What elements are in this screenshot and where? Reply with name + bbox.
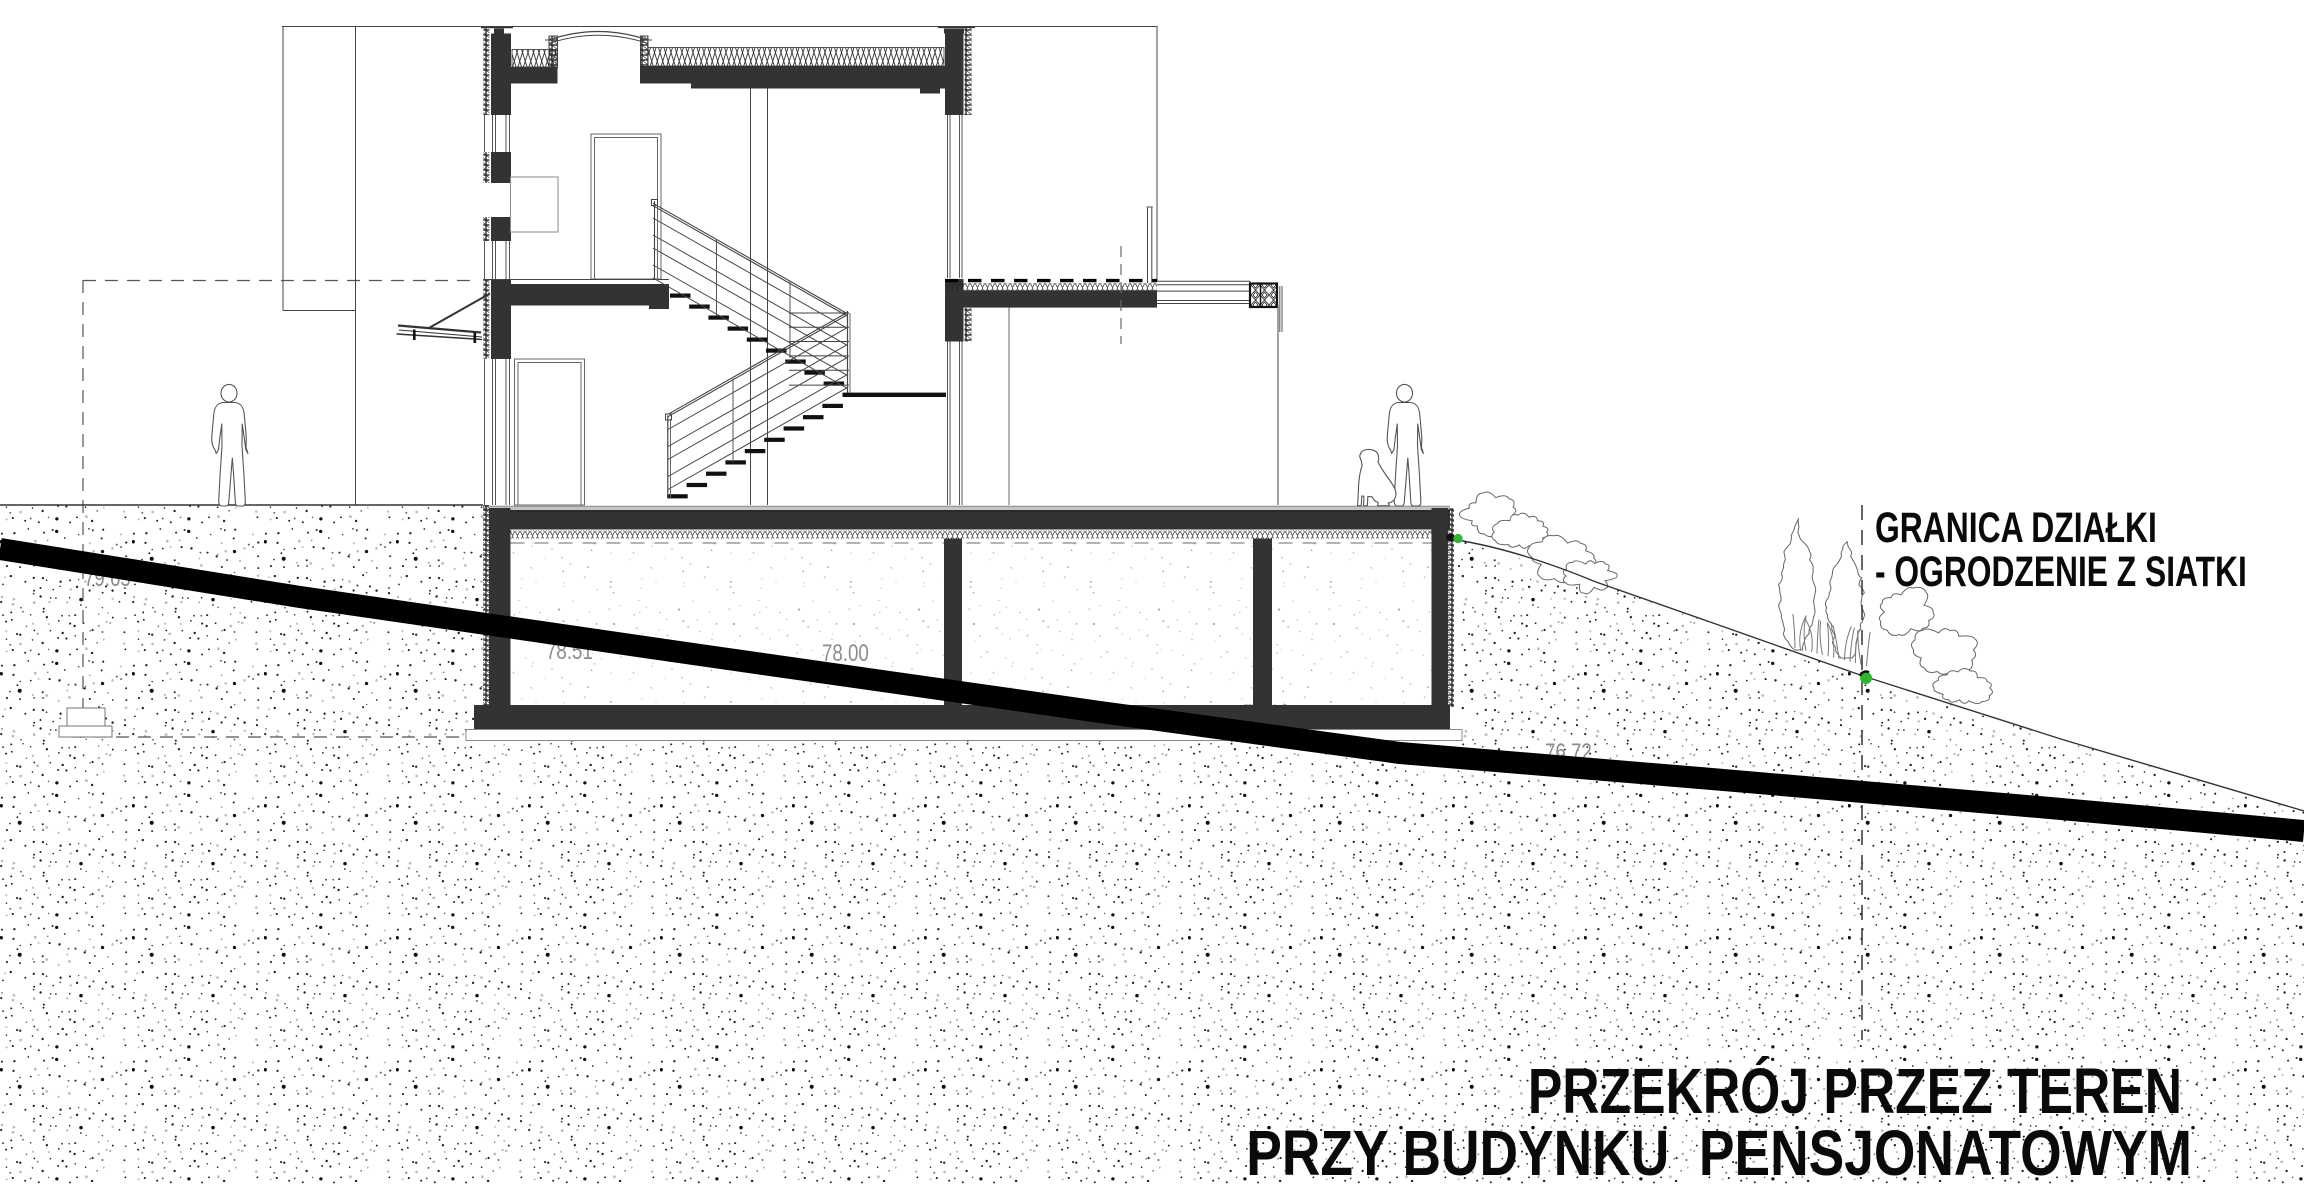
svg-text:- OGRODZENIE Z SIATKI: - OGRODZENIE Z SIATKI [1875,548,2247,596]
svg-text:PRZY BUDYNKU PENSJONATOWYM: PRZY BUDYNKU PENSJONATOWYM [1246,1119,2192,1184]
svg-text:PRZEKRÓJ PRZEZ TEREN: PRZEKRÓJ PRZEZ TEREN [1528,1056,2182,1128]
svg-text:GRANICA DZIAŁKI: GRANICA DZIAŁKI [1875,505,2157,553]
